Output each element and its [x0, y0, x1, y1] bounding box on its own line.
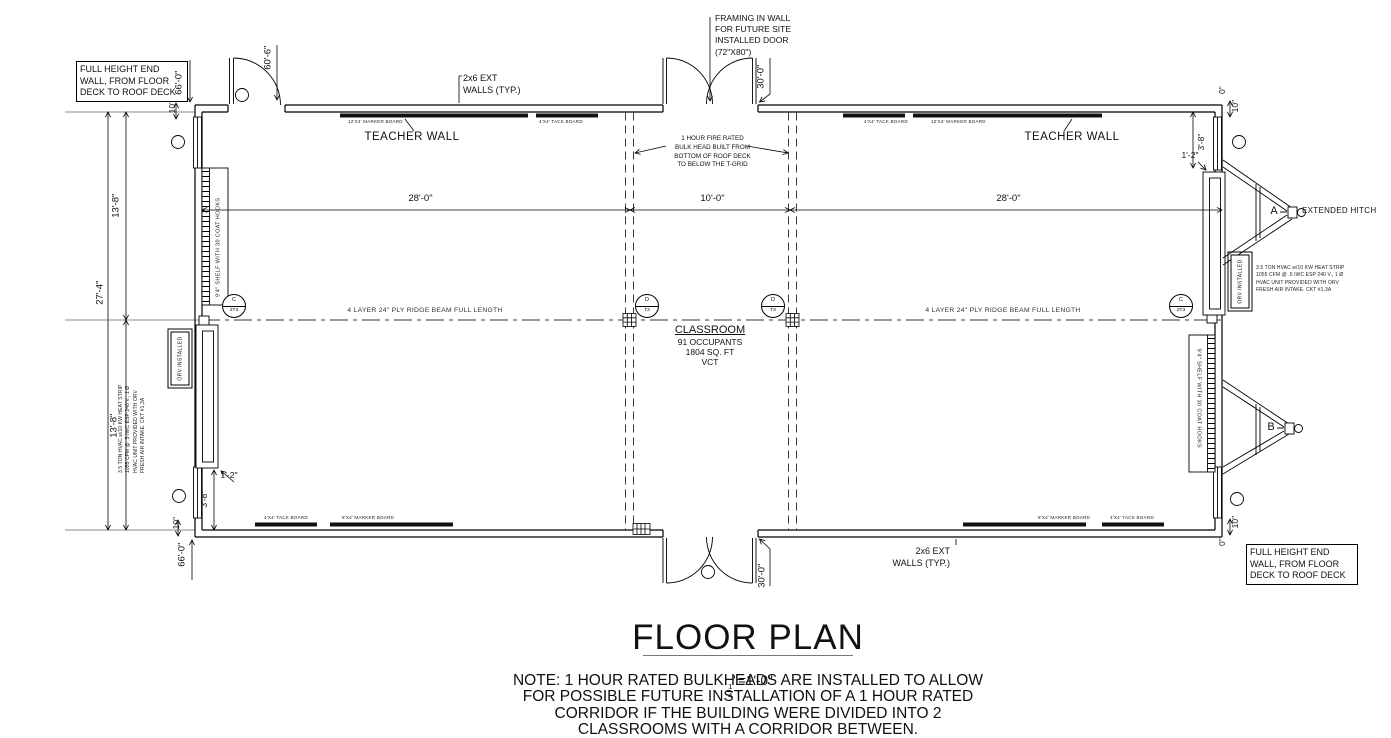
- dim-10in-top-left: 10": [167, 90, 177, 124]
- tag-number: T3: [762, 306, 784, 318]
- fire-bulkhead-note: 1 HOUR FIRE RATED BULK HEAD BUILT FROM B…: [660, 135, 765, 170]
- dim-13-8-top: 13'-8": [110, 180, 121, 232]
- tag-d-t3-left: D T3: [635, 294, 659, 318]
- dim-10in-top-right: 10": [1230, 89, 1240, 123]
- tag-letter: C: [223, 295, 245, 306]
- dim-3-8-bottom-left: 3'-8": [199, 479, 209, 519]
- dim-13-8-bottom: 13'-8": [108, 400, 119, 452]
- ridge-beam-note-left: 4 LAYER 24" PLY RIDGE BEAM FULL LENGTH: [340, 307, 510, 315]
- ridge-beam-note-right: 4 LAYER 24" PLY RIDGE BEAM FULL LENGTH: [918, 307, 1088, 315]
- drawing-title: FLOOR PLAN: [598, 617, 898, 659]
- dimension-lines: [108, 45, 1230, 586]
- board-label-marker12-top-left: 12'X4' MARKER BOARD: [348, 119, 403, 125]
- dim-28ft-right: 28'-0": [981, 193, 1036, 204]
- room-name: CLASSROOM: [660, 324, 760, 337]
- dim-60-6: 60'-6": [262, 32, 273, 84]
- board-label-marker12-top-right: 12'X4' MARKER BOARD: [931, 119, 986, 125]
- tag-number: 2T3: [1170, 306, 1192, 318]
- tag-c-2t3-left: C 2T3: [222, 294, 246, 318]
- general-note: NOTE: 1 HOUR RATED BULKHEADS ARE INSTALL…: [318, 673, 1178, 738]
- framing-note: FRAMING IN WALL FOR FUTURE SITE INSTALLE…: [715, 13, 835, 58]
- tag-letter: C: [1170, 295, 1192, 306]
- dim-10in-bottom-left: 10": [171, 506, 181, 540]
- board-label-tack4-bottom-right: 4'X4' TACK BOARD: [1110, 515, 1154, 521]
- ext-walls-note-top: 2x6 EXT WALLS (TYP.): [463, 73, 543, 96]
- ext-walls-note-bottom: 2x6 EXT WALLS (TYP.): [860, 546, 950, 569]
- dim-1-2-bottom-left: 1'-2": [214, 470, 244, 480]
- hitch-a: [1223, 160, 1306, 265]
- dim-1-2-top-right: 1'-2": [1175, 150, 1205, 160]
- board-label-tack4-bottom-left: 4'X4' TACK BOARD: [264, 515, 308, 521]
- dim-28ft-left: 28'-0": [393, 193, 448, 204]
- tag-number: T3: [636, 306, 658, 318]
- dim-0-bottom-right: 0": [1217, 531, 1227, 553]
- shelf-label-right: 9'4" SHELF WITH 30 COAT HOOKS: [1195, 338, 1202, 458]
- end-wall-note-bottom-right: FULL HEIGHT END WALL, FROM FLOOR DECK TO…: [1246, 544, 1358, 585]
- orv-installed-left: ORV INSTALLED: [171, 332, 190, 386]
- dim-10in-bottom-right: 10": [1230, 505, 1240, 539]
- shelf-label-left: 9'4" SHELF WITH 30 COAT HOOKS: [216, 187, 223, 307]
- room-flooring: VCT: [660, 357, 760, 367]
- dim-0-top-right: 0": [1217, 79, 1227, 101]
- windows: [194, 117, 1222, 518]
- hvac-note-right: 3.5 TON HVAC w/10 KW HEAT STRIP 1055 CFM…: [1256, 265, 1366, 294]
- dim-10ft-center: 10'-0": [685, 193, 740, 204]
- board-label-marker8-bottom-left: 8'X4' MARKER BOARD: [342, 515, 394, 521]
- teacher-wall-label-left: TEACHER WALL: [362, 131, 462, 145]
- shelf-right: [1189, 335, 1215, 472]
- tag-letter: D: [762, 295, 784, 306]
- room-occupants: 91 OCCUPANTS: [660, 337, 760, 347]
- hvac-note-left: 3.5 TON HVAC w/10 KW HEAT STRIP 1055 CFM…: [118, 329, 148, 473]
- hitch-b-label: B: [1263, 421, 1279, 434]
- tag-number: 2T3: [223, 306, 245, 318]
- room-area: 1804 SQ. FT: [660, 347, 760, 357]
- dim-30-bottom: 30'-0": [756, 550, 767, 602]
- tag-letter: D: [636, 295, 658, 306]
- floor-plan-sheet: FULL HEIGHT END WALL, FROM FLOOR DECK TO…: [0, 0, 1391, 738]
- extended-hitch-label: EXTENDED HITCH: [1302, 206, 1391, 216]
- tag-d-t3-right: D T3: [761, 294, 785, 318]
- board-label-tack4-top-right: 4'X4' TACK BOARD: [864, 119, 908, 125]
- tag-c-2t3-right: C 2T3: [1169, 294, 1193, 318]
- dim-30-top: 30'-0": [755, 51, 766, 103]
- board-label-tack4-top-left: 4'X4' TACK BOARD: [539, 119, 583, 125]
- hitch-a-label: A: [1266, 205, 1282, 218]
- orv-installed-right: ORV INSTALLED: [1231, 255, 1250, 309]
- hvac-unit-right: [1203, 172, 1225, 323]
- dim-27-4: 27'-4": [94, 267, 105, 319]
- board-label-marker8-bottom-right: 8'X4' MARKER BOARD: [1038, 515, 1090, 521]
- title-underline: [643, 655, 853, 656]
- hvac-unit-left: [196, 316, 218, 468]
- teacher-wall-label-right: TEACHER WALL: [1022, 131, 1122, 145]
